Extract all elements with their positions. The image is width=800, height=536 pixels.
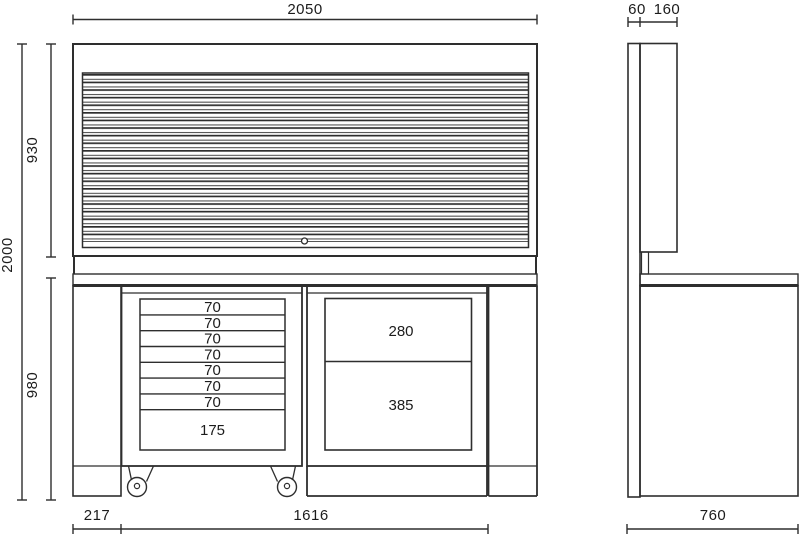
dim-total-height: 2000 bbox=[0, 44, 27, 500]
front-view: 70 70 70 70 70 70 70 175 2 bbox=[0, 1, 537, 534]
drawer-height-label-8: 175 bbox=[200, 422, 225, 439]
drawer-height-label-4: 70 bbox=[204, 346, 221, 363]
dim-total-height-label: 2000 bbox=[0, 237, 16, 272]
left-end-panel bbox=[73, 286, 121, 497]
right-end-panel bbox=[489, 286, 538, 497]
worktop-front bbox=[73, 256, 537, 286]
back-panel-side bbox=[628, 44, 640, 498]
dim-bottom-widths: 217 1616 bbox=[73, 507, 488, 534]
workbench-drawing: 70 70 70 70 70 70 70 175 2 bbox=[0, 0, 800, 536]
drawer-height-label-6: 70 bbox=[204, 378, 221, 395]
worktop-slab-front bbox=[73, 274, 537, 286]
dim-bench-height-label: 980 bbox=[24, 372, 41, 399]
dim-bench-depth-label: 760 bbox=[700, 507, 727, 524]
fixed-cabinet: 280 385 bbox=[307, 286, 487, 496]
dim-upper-cabinet-height: 930 bbox=[24, 44, 56, 257]
drawer-height-label-3: 70 bbox=[204, 331, 221, 348]
shutter-lock-icon bbox=[302, 238, 308, 244]
fixed-drawer-label-2: 385 bbox=[388, 397, 413, 414]
side-view: 60 160 760 bbox=[627, 1, 798, 534]
dim-back-panel-depth-label: 60 bbox=[628, 1, 646, 18]
dim-bench-height: 980 bbox=[24, 278, 56, 500]
upper-cabinet-side bbox=[640, 44, 677, 253]
dim-total-width-label: 2050 bbox=[287, 1, 322, 18]
roller-shutter-slats bbox=[83, 74, 528, 242]
dim-upper-cabinet-height-label: 930 bbox=[24, 137, 41, 164]
dim-depths-top: 60 160 bbox=[628, 1, 680, 27]
fixed-cabinet-outline bbox=[307, 286, 487, 466]
cabinet-support-bracket bbox=[642, 252, 649, 274]
dim-upper-cabinet-depth-label: 160 bbox=[654, 1, 681, 18]
caster-wheel-right bbox=[271, 466, 297, 497]
dim-bench-width-label: 1616 bbox=[293, 507, 328, 524]
technical-drawing-page: 70 70 70 70 70 70 70 175 2 bbox=[0, 0, 800, 536]
bench-body-side bbox=[640, 286, 798, 497]
drawer-height-label-7: 70 bbox=[204, 394, 221, 411]
upper-shutter-cabinet bbox=[73, 44, 537, 256]
dim-left-offset-label: 217 bbox=[84, 507, 111, 524]
drawer-height-label-1: 70 bbox=[204, 299, 221, 316]
drawer-height-label-2: 70 bbox=[204, 315, 221, 332]
worktop-side bbox=[640, 274, 798, 286]
roller-cabinet: 70 70 70 70 70 70 70 175 bbox=[122, 286, 303, 466]
fixed-drawer-label-1: 280 bbox=[388, 323, 413, 340]
drawer-height-label-5: 70 bbox=[204, 362, 221, 379]
dim-bench-depth: 760 bbox=[627, 507, 798, 534]
caster-wheel-left bbox=[128, 466, 154, 497]
dim-total-width: 2050 bbox=[73, 1, 537, 25]
fixed-cabinet-drawer-box bbox=[325, 299, 472, 451]
